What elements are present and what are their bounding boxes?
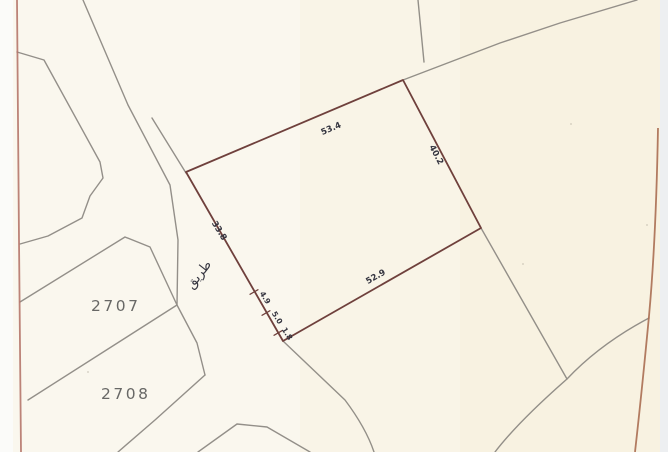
page-margin-right bbox=[660, 0, 668, 452]
page-margin-left bbox=[0, 0, 13, 452]
speckle bbox=[570, 123, 572, 125]
cadastral-map-svg: 53.4 40.2 52.9 33.8 4.9 5.0 1.8 طريق 270… bbox=[0, 0, 668, 452]
speckle bbox=[646, 224, 648, 226]
parcel-number-2707: 2707 bbox=[91, 297, 140, 315]
parcel-number-2708: 2708 bbox=[101, 385, 150, 403]
paper-warm-tint-strong bbox=[460, 0, 668, 452]
scanned-cadastral-map: 53.4 40.2 52.9 33.8 4.9 5.0 1.8 طريق 270… bbox=[0, 0, 668, 452]
speckle bbox=[87, 371, 89, 373]
speckle bbox=[522, 263, 524, 265]
